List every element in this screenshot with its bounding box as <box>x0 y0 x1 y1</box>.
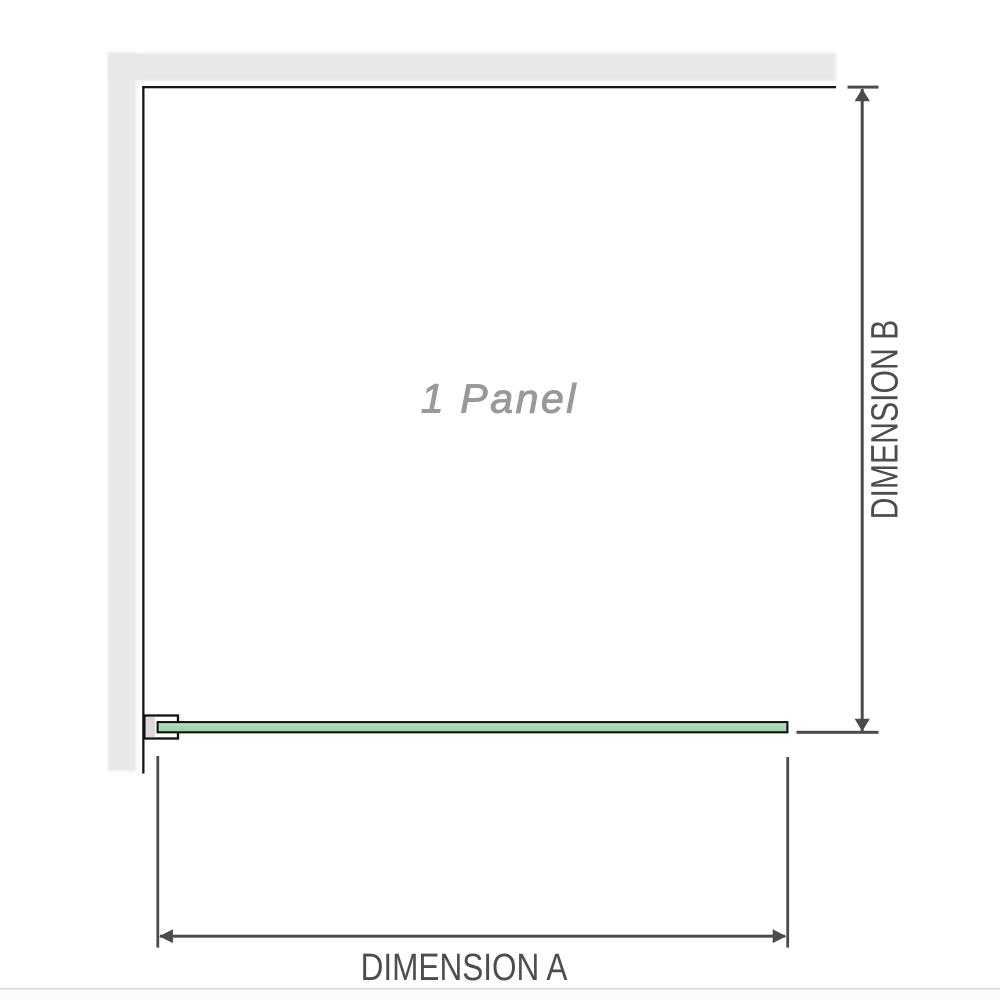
svg-text:1 Panel: 1 Panel <box>421 376 578 422</box>
svg-text:DIMENSION A: DIMENSION A <box>361 946 568 988</box>
svg-text:DIMENSION B: DIMENSION B <box>864 320 906 520</box>
